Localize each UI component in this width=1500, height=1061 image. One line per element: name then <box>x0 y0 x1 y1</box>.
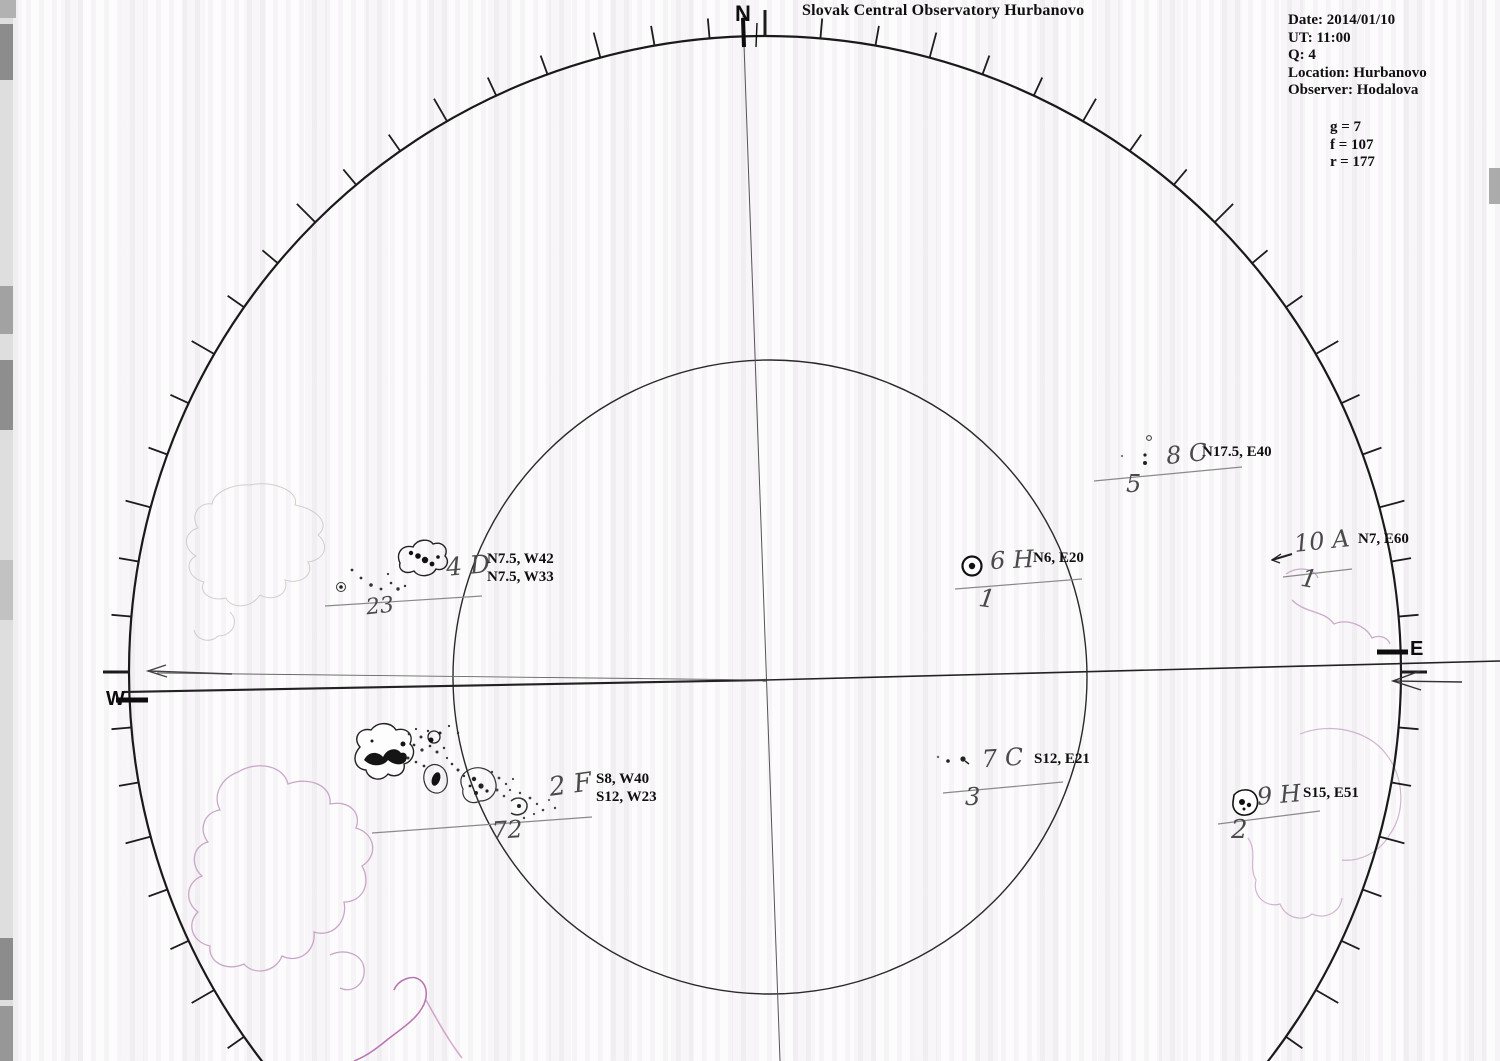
group-10a-id: 10 A <box>1293 524 1351 558</box>
groups-count-g: g = 7 <box>1330 119 1375 137</box>
group-8c-coords: N17.5, E40 <box>1202 444 1272 461</box>
observation-sheet: Slovak Central Observatory Hurbanovo Dat… <box>0 0 1500 1061</box>
sunspot-group-10a-mark <box>1272 554 1292 563</box>
north-south-axis-line <box>743 16 780 1061</box>
group-2f-coords-2: S12, W23 <box>596 789 657 806</box>
inner-circle <box>453 360 1087 994</box>
group-2f-coords-1: S8, W40 <box>596 771 649 788</box>
faculae-contour-bottom-center <box>354 978 462 1061</box>
group-9h-spot-count: 2 <box>1231 815 1248 845</box>
wolf-number-r: r = 177 <box>1330 154 1375 172</box>
page-title: Slovak Central Observatory Hurbanovo <box>802 2 1084 20</box>
faculae-contour-left <box>186 484 324 641</box>
sunspot-group-4d-drawing <box>337 540 448 591</box>
group-9h-id: 9 H <box>1256 779 1302 811</box>
outer-limb-circle <box>129 36 1401 1061</box>
group-10a-coords: N7, E60 <box>1358 531 1409 548</box>
cardinal-ticks <box>116 18 1408 700</box>
group-7c-id: 7 C <box>981 743 1024 774</box>
group-7c-spot-count: 3 <box>965 783 980 811</box>
faculae-contour-southeast <box>1248 728 1401 918</box>
group-underlines <box>325 467 1352 833</box>
east-arrow <box>1393 671 1462 690</box>
group-6h-id: 6 H <box>989 545 1034 575</box>
west-arrow <box>148 665 232 677</box>
group-4d-spot-count: 23 <box>365 593 395 621</box>
sunspot-group-7c-drawing <box>937 756 969 764</box>
group-2f-id: 2 F <box>547 767 594 803</box>
date-field: Date: 2014/01/10 <box>1288 12 1427 30</box>
group-4d-coords-2: N7.5, W33 <box>487 569 554 586</box>
ut-field: UT: 11:00 <box>1288 30 1427 48</box>
header-info: Date: 2014/01/10 UT: 11:00 Q: 4 Location… <box>1288 12 1427 100</box>
group-8c-spot-count: 5 <box>1126 470 1141 498</box>
group-7c-coords: S12, E21 <box>1034 751 1090 768</box>
sunspot-group-8c-drawing <box>1121 436 1151 465</box>
group-4d-id: 4 D <box>445 549 491 582</box>
north-label: N <box>735 1 751 27</box>
east-label: E <box>1410 638 1423 661</box>
group-9h-coords: S15, E51 <box>1303 785 1359 802</box>
group-2f-spot-count: 72 <box>491 815 523 845</box>
observer-field: Observer: Hodalova <box>1288 82 1427 100</box>
quality-field: Q: 4 <box>1288 47 1427 65</box>
scan-edge-artifacts <box>0 0 1500 1061</box>
faculae-contour-bottom-left <box>189 766 373 990</box>
group-4d-coords-1: N7.5, W42 <box>487 551 554 568</box>
sunspot-group-9h-drawing <box>1233 790 1258 815</box>
solar-disk-drawing <box>0 0 1500 1061</box>
spots-count-f: f = 107 <box>1330 137 1375 155</box>
group-6h-coords: N6, E20 <box>1033 550 1084 567</box>
west-label: W <box>106 688 125 711</box>
location-field: Location: Hurbanovo <box>1288 65 1427 83</box>
sunspot-statistics: g = 7 f = 107 r = 177 <box>1330 119 1375 172</box>
sunspot-group-6h-drawing <box>963 557 982 576</box>
east-west-axis-line <box>124 661 1500 692</box>
limb-tick-marks <box>103 10 1427 1061</box>
sunspot-group-2f-drawing <box>355 724 556 820</box>
